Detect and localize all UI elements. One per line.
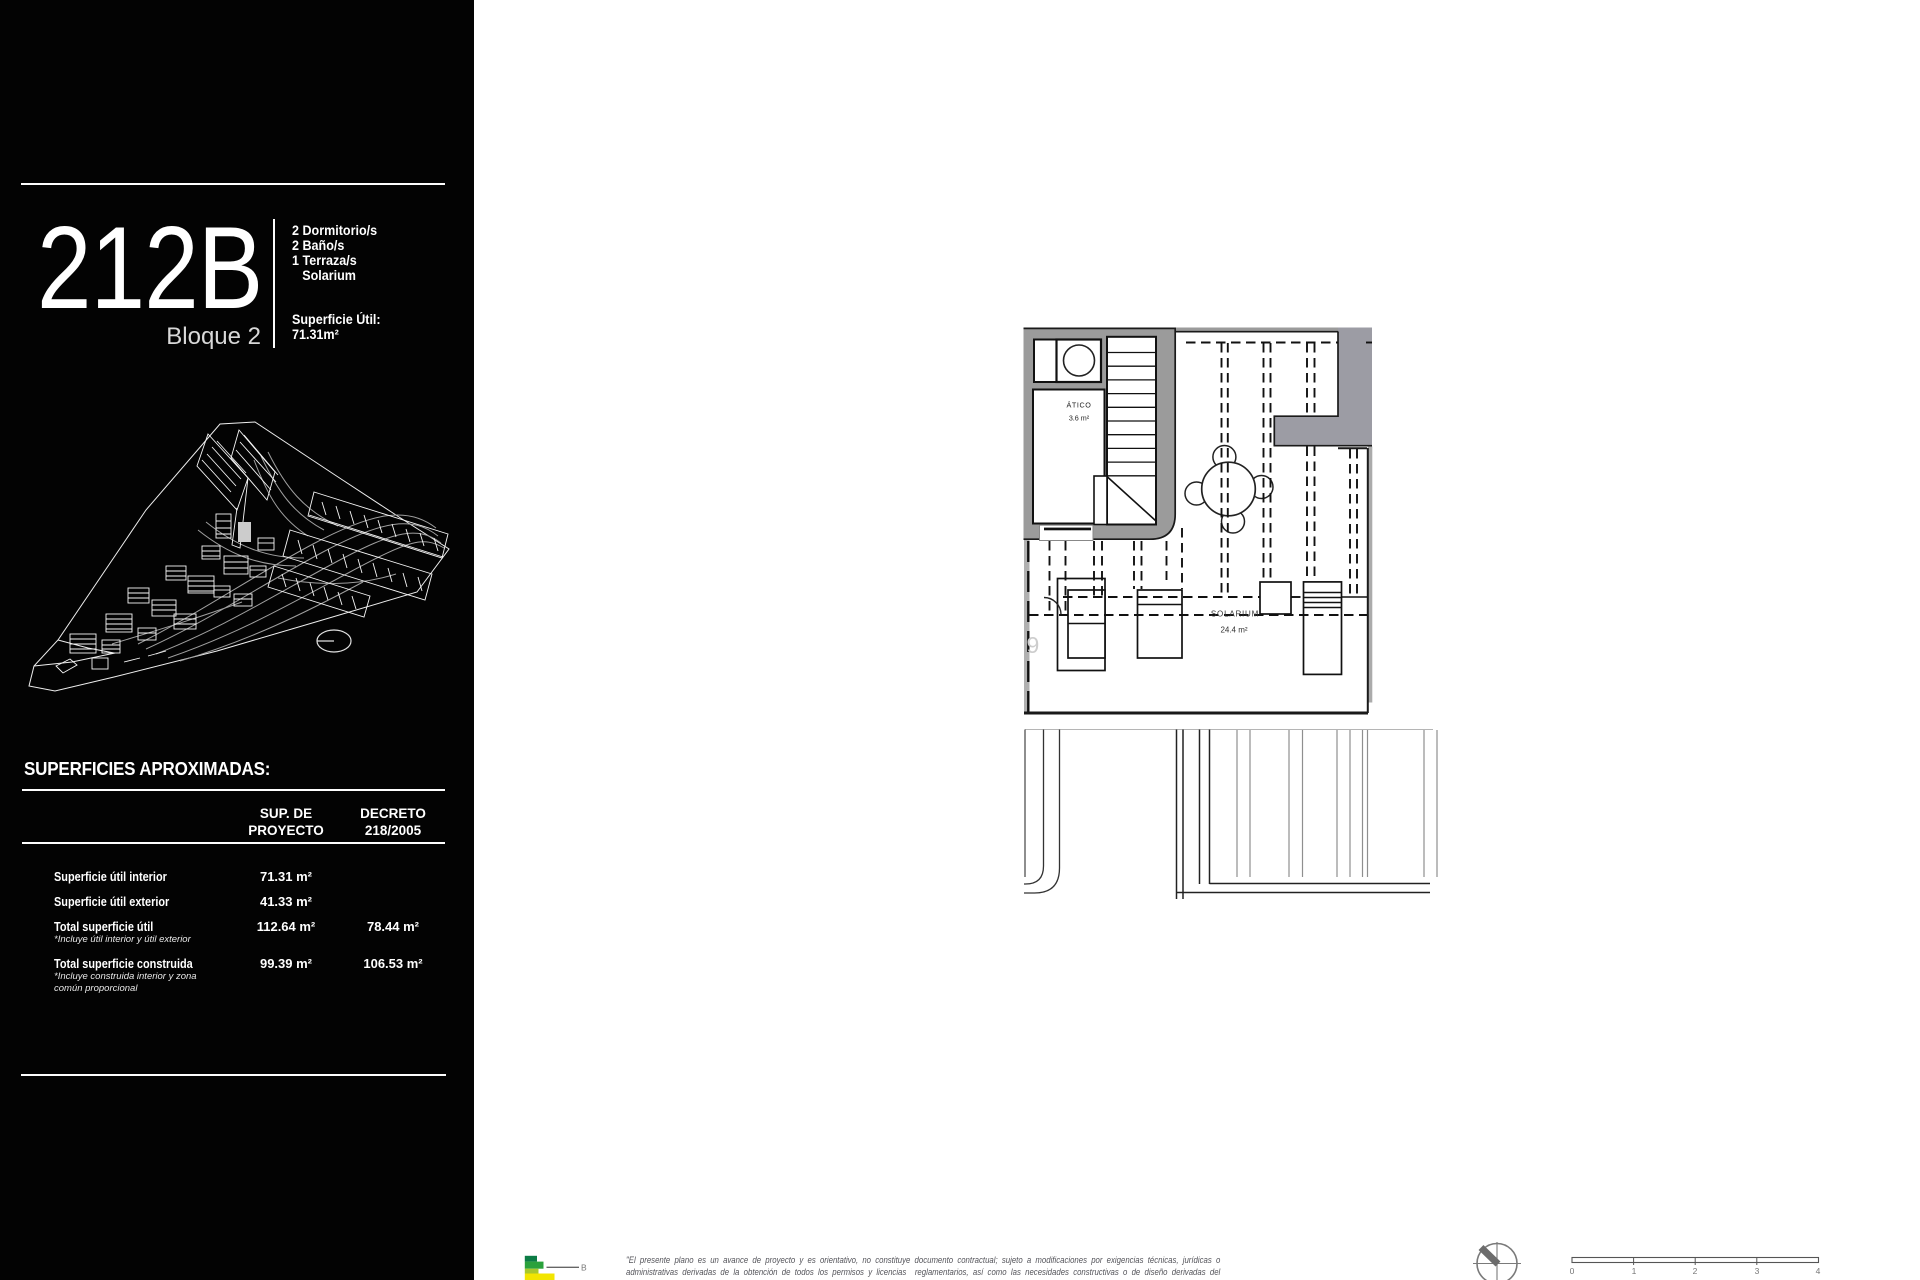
svg-text:3.6 m²: 3.6 m² (1069, 414, 1090, 423)
svg-text:SOLARIUM: SOLARIUM (1211, 610, 1259, 619)
svg-text:ÁTICO: ÁTICO (1067, 401, 1092, 410)
svg-text:4: 4 (1816, 1266, 1821, 1276)
svg-text:2: 2 (1693, 1266, 1698, 1276)
svg-text:3: 3 (1755, 1266, 1760, 1276)
svg-text:24.4 m²: 24.4 m² (1220, 626, 1247, 635)
svg-text:1: 1 (1632, 1266, 1637, 1276)
svg-text:0: 0 (1570, 1266, 1575, 1276)
svg-text:9: 9 (1027, 632, 1040, 658)
svg-text:B: B (581, 1262, 587, 1272)
